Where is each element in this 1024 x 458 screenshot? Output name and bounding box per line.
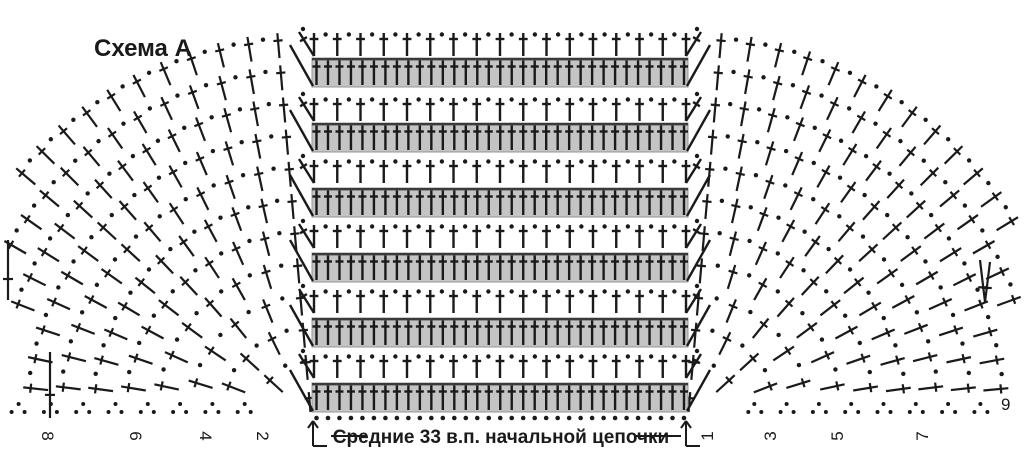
open-row — [299, 284, 701, 313]
open-row — [299, 27, 701, 56]
row-number-3: 3 — [761, 431, 780, 440]
fan-row — [716, 33, 1018, 230]
row-number-2: 2 — [253, 431, 272, 440]
fan-row — [705, 162, 957, 414]
row-number-8: 8 — [38, 431, 57, 440]
fan-row — [10, 130, 291, 414]
fan-row — [11, 98, 288, 311]
fan-row — [694, 291, 828, 414]
row-number-4: 4 — [196, 431, 215, 440]
fan-row — [702, 194, 924, 414]
fan-row — [708, 130, 989, 414]
chart-title: Схема А — [94, 35, 192, 62]
page: Схема А Средние 33 в.п. начальной цепочк… — [0, 0, 1024, 458]
center-panel — [290, 27, 710, 421]
open-row — [299, 219, 701, 248]
row-number-7: 7 — [913, 431, 932, 440]
row-number-5: 5 — [828, 431, 847, 440]
open-row — [299, 349, 701, 378]
row-number-9: 9 — [1001, 395, 1010, 414]
open-row — [299, 154, 701, 183]
fan-row — [42, 162, 294, 414]
fan-row — [4, 65, 285, 253]
fan-right — [685, 33, 1020, 414]
fan-row — [74, 194, 296, 414]
fan-row — [714, 65, 1021, 305]
row-number-1: 1 — [698, 431, 717, 440]
foundation-label: Средние 33 в.п. начальной цепочки — [333, 427, 669, 448]
crochet-chart: Схема А Средние 33 в.п. начальной цепочк… — [0, 0, 1024, 458]
row-number-6: 6 — [126, 431, 145, 440]
fan-row — [171, 291, 305, 414]
open-row — [299, 92, 701, 121]
foundation-chain — [314, 416, 686, 421]
